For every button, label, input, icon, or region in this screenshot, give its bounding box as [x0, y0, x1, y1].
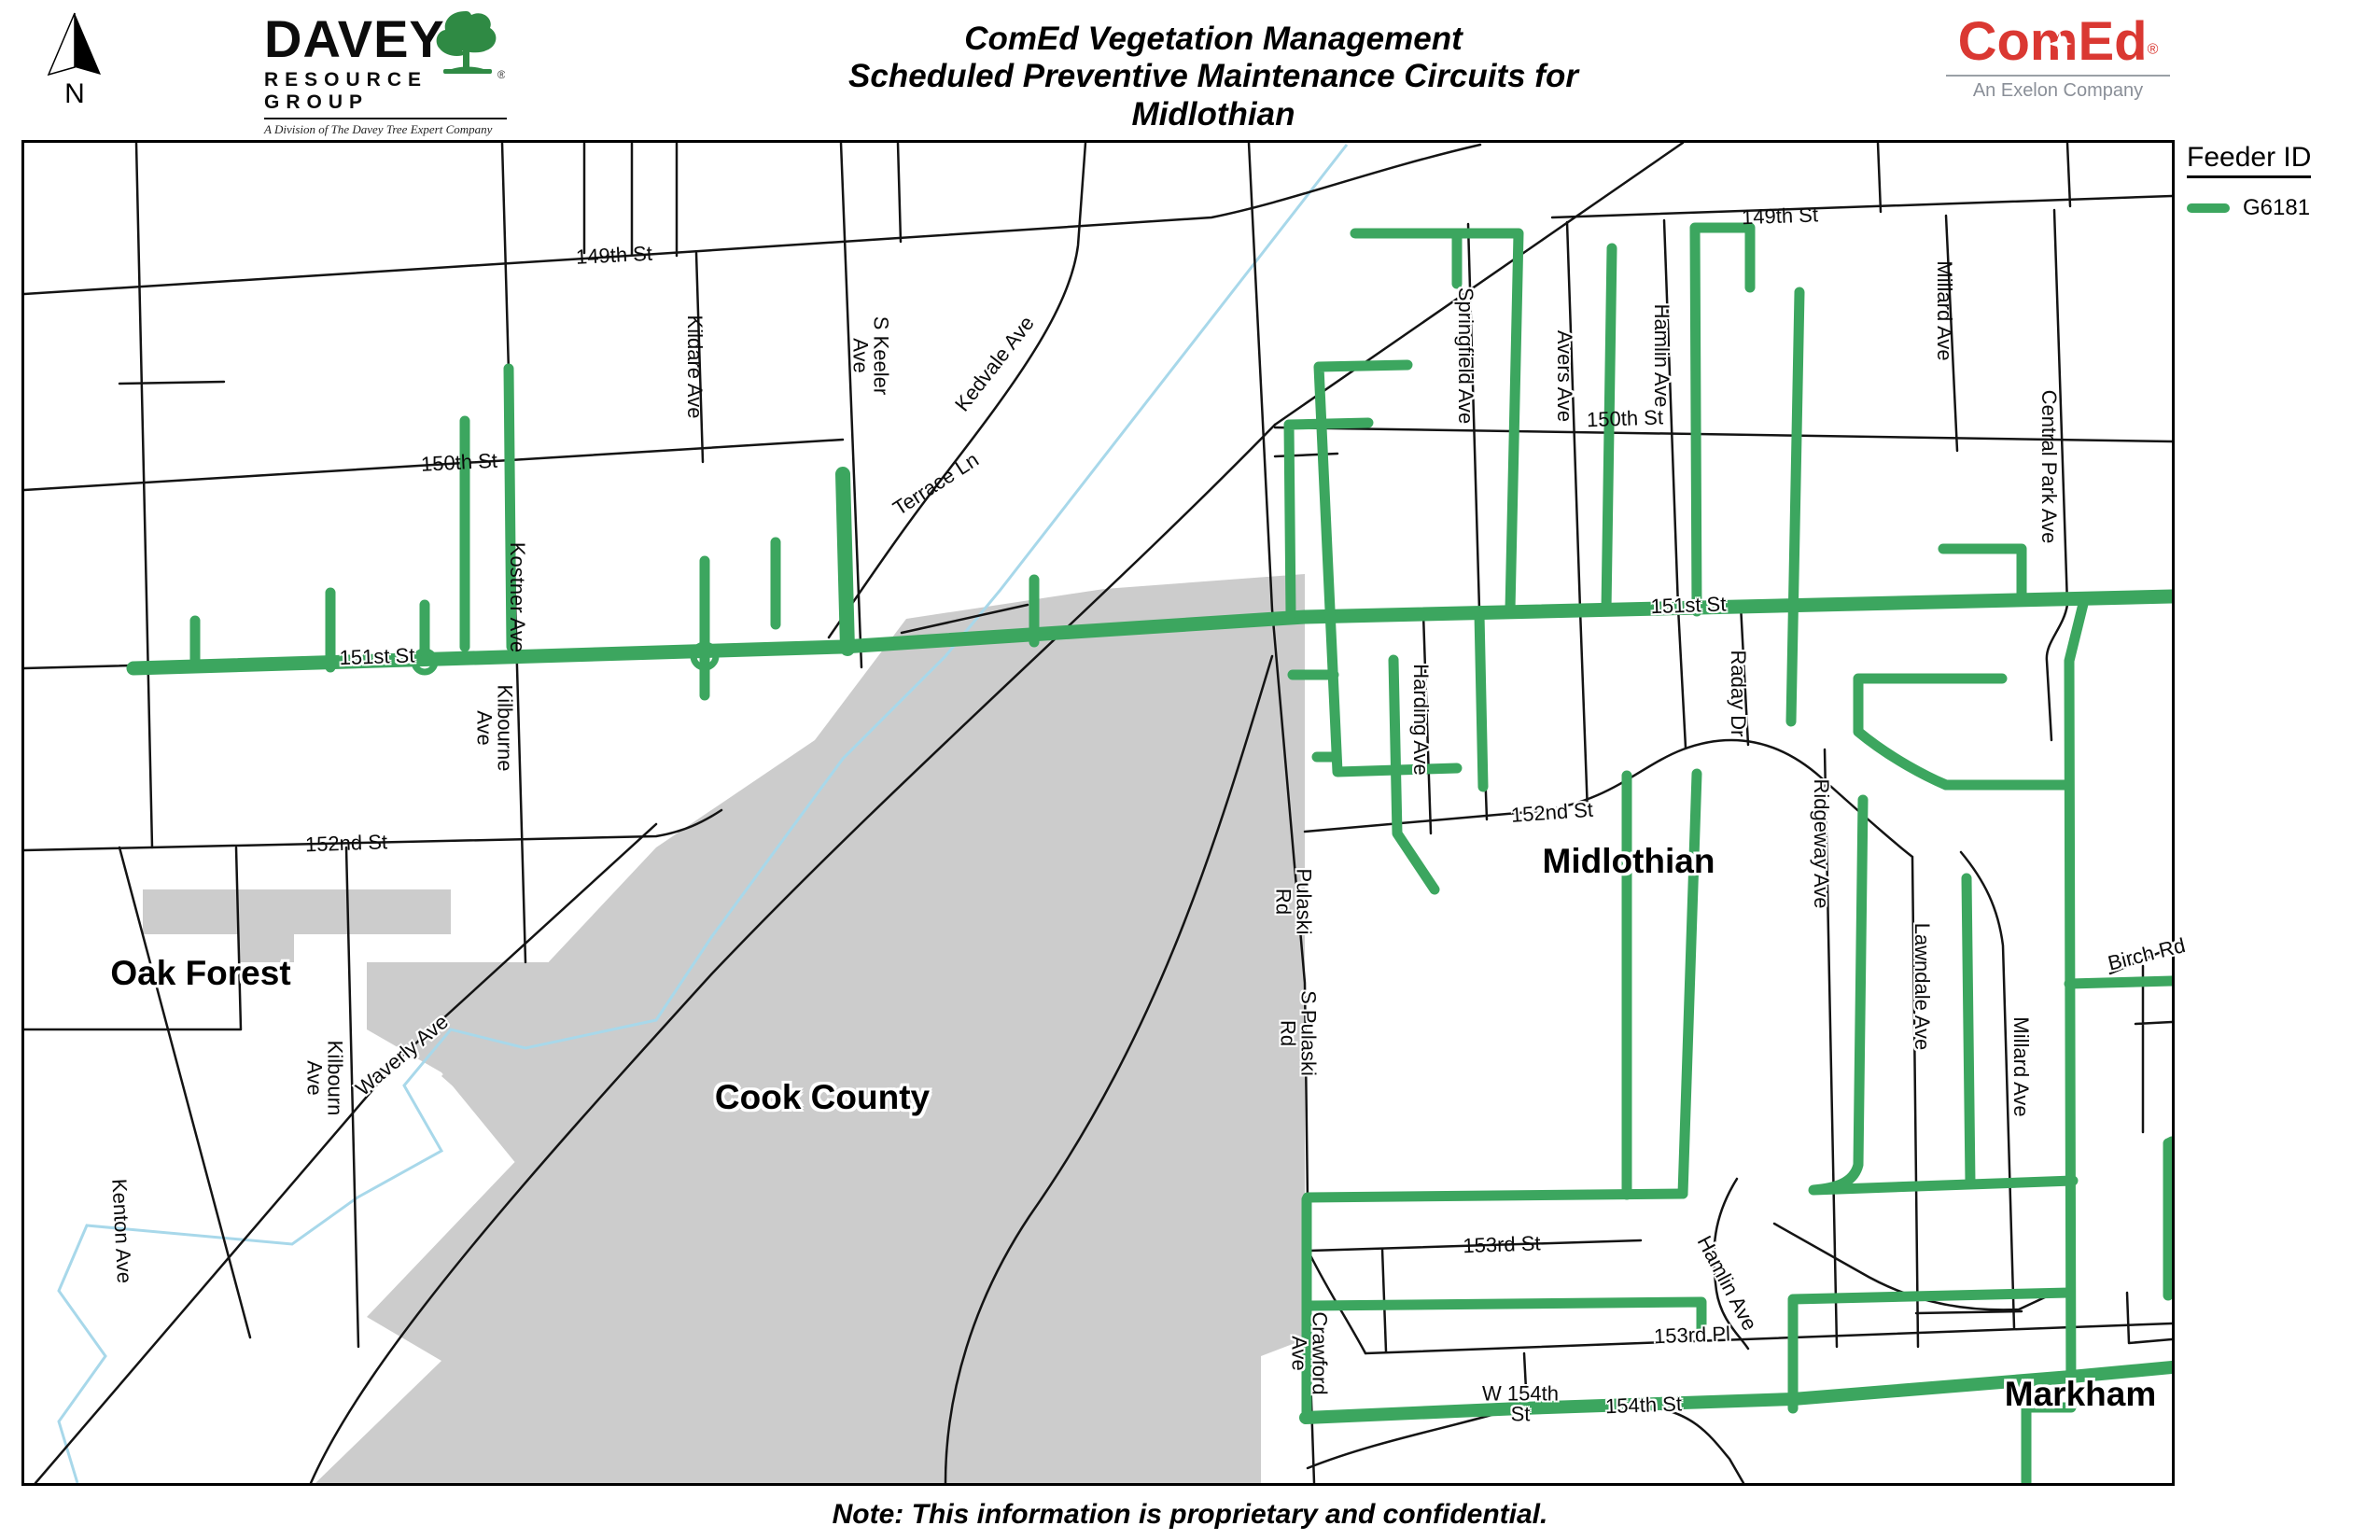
street-label: Hamlin Ave: [1693, 1233, 1760, 1334]
title-line2: Scheduled Preventive Maintenance Circuit…: [793, 58, 1633, 133]
street-label: 150th St: [420, 451, 497, 476]
street-label: Raday Dr: [1728, 651, 1748, 737]
street-label: Birch Rd: [2106, 935, 2187, 974]
feeder-line-swatch: [2187, 203, 2230, 213]
legend: Feeder ID G6181: [2187, 142, 2364, 221]
comed-wordmark: ComEd: [1958, 15, 2148, 69]
map-label-layer: 149th St149th St150th St150th St151st St…: [24, 143, 2172, 1483]
city-label: Midlothian: [1543, 842, 1715, 881]
street-label: S PulaskiRd: [1277, 990, 1319, 1076]
street-label: Waverly Ave: [352, 1012, 452, 1100]
street-label: W 154thSt: [1482, 1384, 1559, 1426]
street-label: Kildare Ave: [684, 315, 705, 419]
street-label: Lawndale Ave: [1911, 923, 1932, 1051]
north-arrow: N: [37, 9, 112, 117]
street-label: 149th St: [575, 244, 652, 269]
street-label: 150th St: [1587, 407, 1664, 430]
title-line1: ComEd Vegetation Management: [793, 21, 1633, 58]
north-arrow-icon: [37, 9, 112, 79]
street-label: Kenton Ave: [108, 1178, 134, 1283]
page-title: ComEd Vegetation Management Scheduled Pr…: [793, 21, 1633, 133]
north-label: N: [64, 78, 85, 110]
page: N DAVEY ® RESOURCE GROUP A Division of T…: [0, 0, 2380, 1540]
street-label: Central Park Ave: [2038, 390, 2059, 544]
street-label: 153rd St: [1463, 1233, 1541, 1256]
davey-logo: DAVEY ® RESOURCE GROUP A Division of The…: [264, 13, 507, 130]
street-label: PulaskiRd: [1272, 869, 1314, 935]
street-label: Avers Ave: [1554, 330, 1575, 422]
street-label: Kostner Ave: [507, 542, 527, 652]
svg-text:®: ®: [497, 68, 505, 81]
map-canvas: 149th St149th St150th St150th St151st St…: [21, 140, 2175, 1486]
city-label: Markham: [2005, 1375, 2156, 1414]
street-label: Harding Ave: [1410, 664, 1431, 775]
city-label: Oak Forest: [110, 954, 290, 993]
street-label: 151st St: [1650, 594, 1726, 617]
street-label: Ridgeway Ave: [1811, 778, 1831, 908]
street-label: 152nd St: [305, 832, 388, 855]
legend-title: Feeder ID: [2187, 142, 2311, 178]
street-label: Hamlin Ave: [1651, 304, 1672, 408]
street-label: CrawfordAve: [1288, 1311, 1330, 1394]
street-label: Terrace Ln: [889, 449, 982, 519]
comed-registered: ®: [2148, 42, 2159, 58]
davey-tagline: A Division of The Davey Tree Expert Comp…: [264, 122, 507, 137]
street-label: 154th St: [1605, 1393, 1683, 1417]
street-label: Springfield Ave: [1455, 287, 1476, 424]
street-label: 149th St: [1742, 204, 1819, 228]
street-label: Millard Ave: [2010, 1016, 2031, 1116]
confidentiality-note: Note: This information is proprietary an…: [0, 1499, 2380, 1531]
legend-feeder-id: G6181: [2243, 195, 2310, 221]
comed-rule: [1946, 75, 2170, 77]
street-label: Kedvale Ave: [952, 313, 1039, 415]
street-label: Millard Ave: [1934, 260, 1954, 360]
street-label: 153rd Pl: [1654, 1323, 1731, 1347]
comed-logo: ComEd® An Exelon Company: [1946, 15, 2170, 102]
legend-item: G6181: [2187, 195, 2364, 221]
comed-star-icon: [2048, 32, 2072, 56]
street-label: S KeelerAve: [849, 316, 891, 395]
street-label: 152nd St: [1510, 800, 1593, 827]
davey-tree-icon: ®: [430, 9, 505, 87]
comed-subtitle: An Exelon Company: [1946, 80, 2170, 102]
street-label: KilbournAve: [303, 1041, 345, 1116]
city-label: Cook County: [715, 1078, 930, 1117]
street-label: 151st St: [339, 645, 414, 668]
street-label: KilbourneAve: [473, 685, 515, 772]
